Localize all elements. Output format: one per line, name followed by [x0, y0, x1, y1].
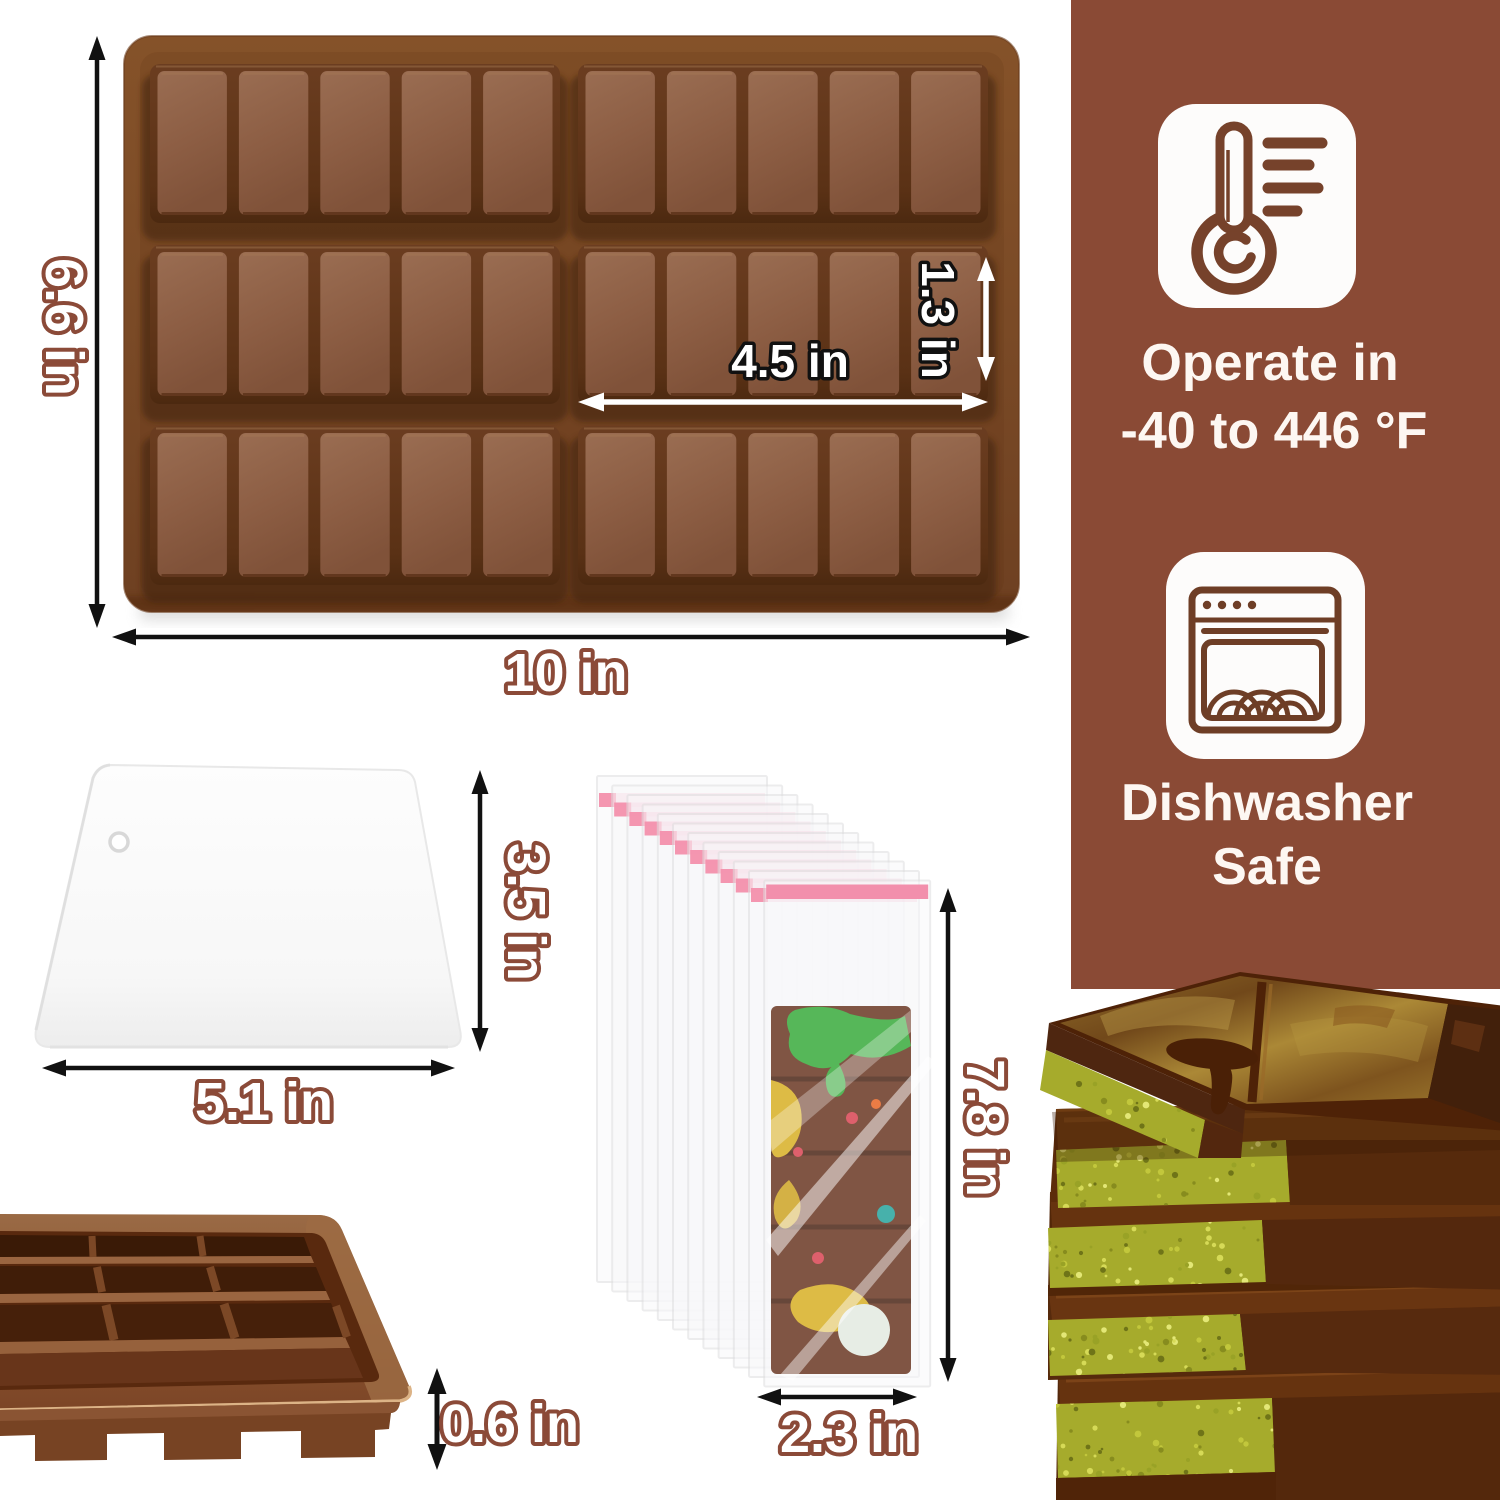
- svg-text:2.3 in: 2.3 in: [780, 1404, 918, 1464]
- svg-text:-40 to 446 °F: -40 to 446 °F: [1121, 402, 1428, 460]
- svg-text:6.6 in: 6.6 in: [34, 258, 94, 396]
- svg-text:Dishwasher: Dishwasher: [1121, 774, 1413, 832]
- svg-text:3.5 in: 3.5 in: [496, 843, 556, 981]
- svg-text:5.1 in: 5.1 in: [195, 1072, 333, 1132]
- svg-text:0.6 in: 0.6 in: [441, 1394, 579, 1454]
- svg-text:10 in: 10 in: [504, 643, 627, 703]
- svg-text:7.8 in: 7.8 in: [955, 1059, 1015, 1197]
- svg-text:Operate in: Operate in: [1141, 334, 1398, 392]
- svg-text:4.5 in: 4.5 in: [731, 335, 849, 387]
- svg-text:1.3 in: 1.3 in: [912, 261, 964, 379]
- svg-text:Safe: Safe: [1212, 838, 1322, 896]
